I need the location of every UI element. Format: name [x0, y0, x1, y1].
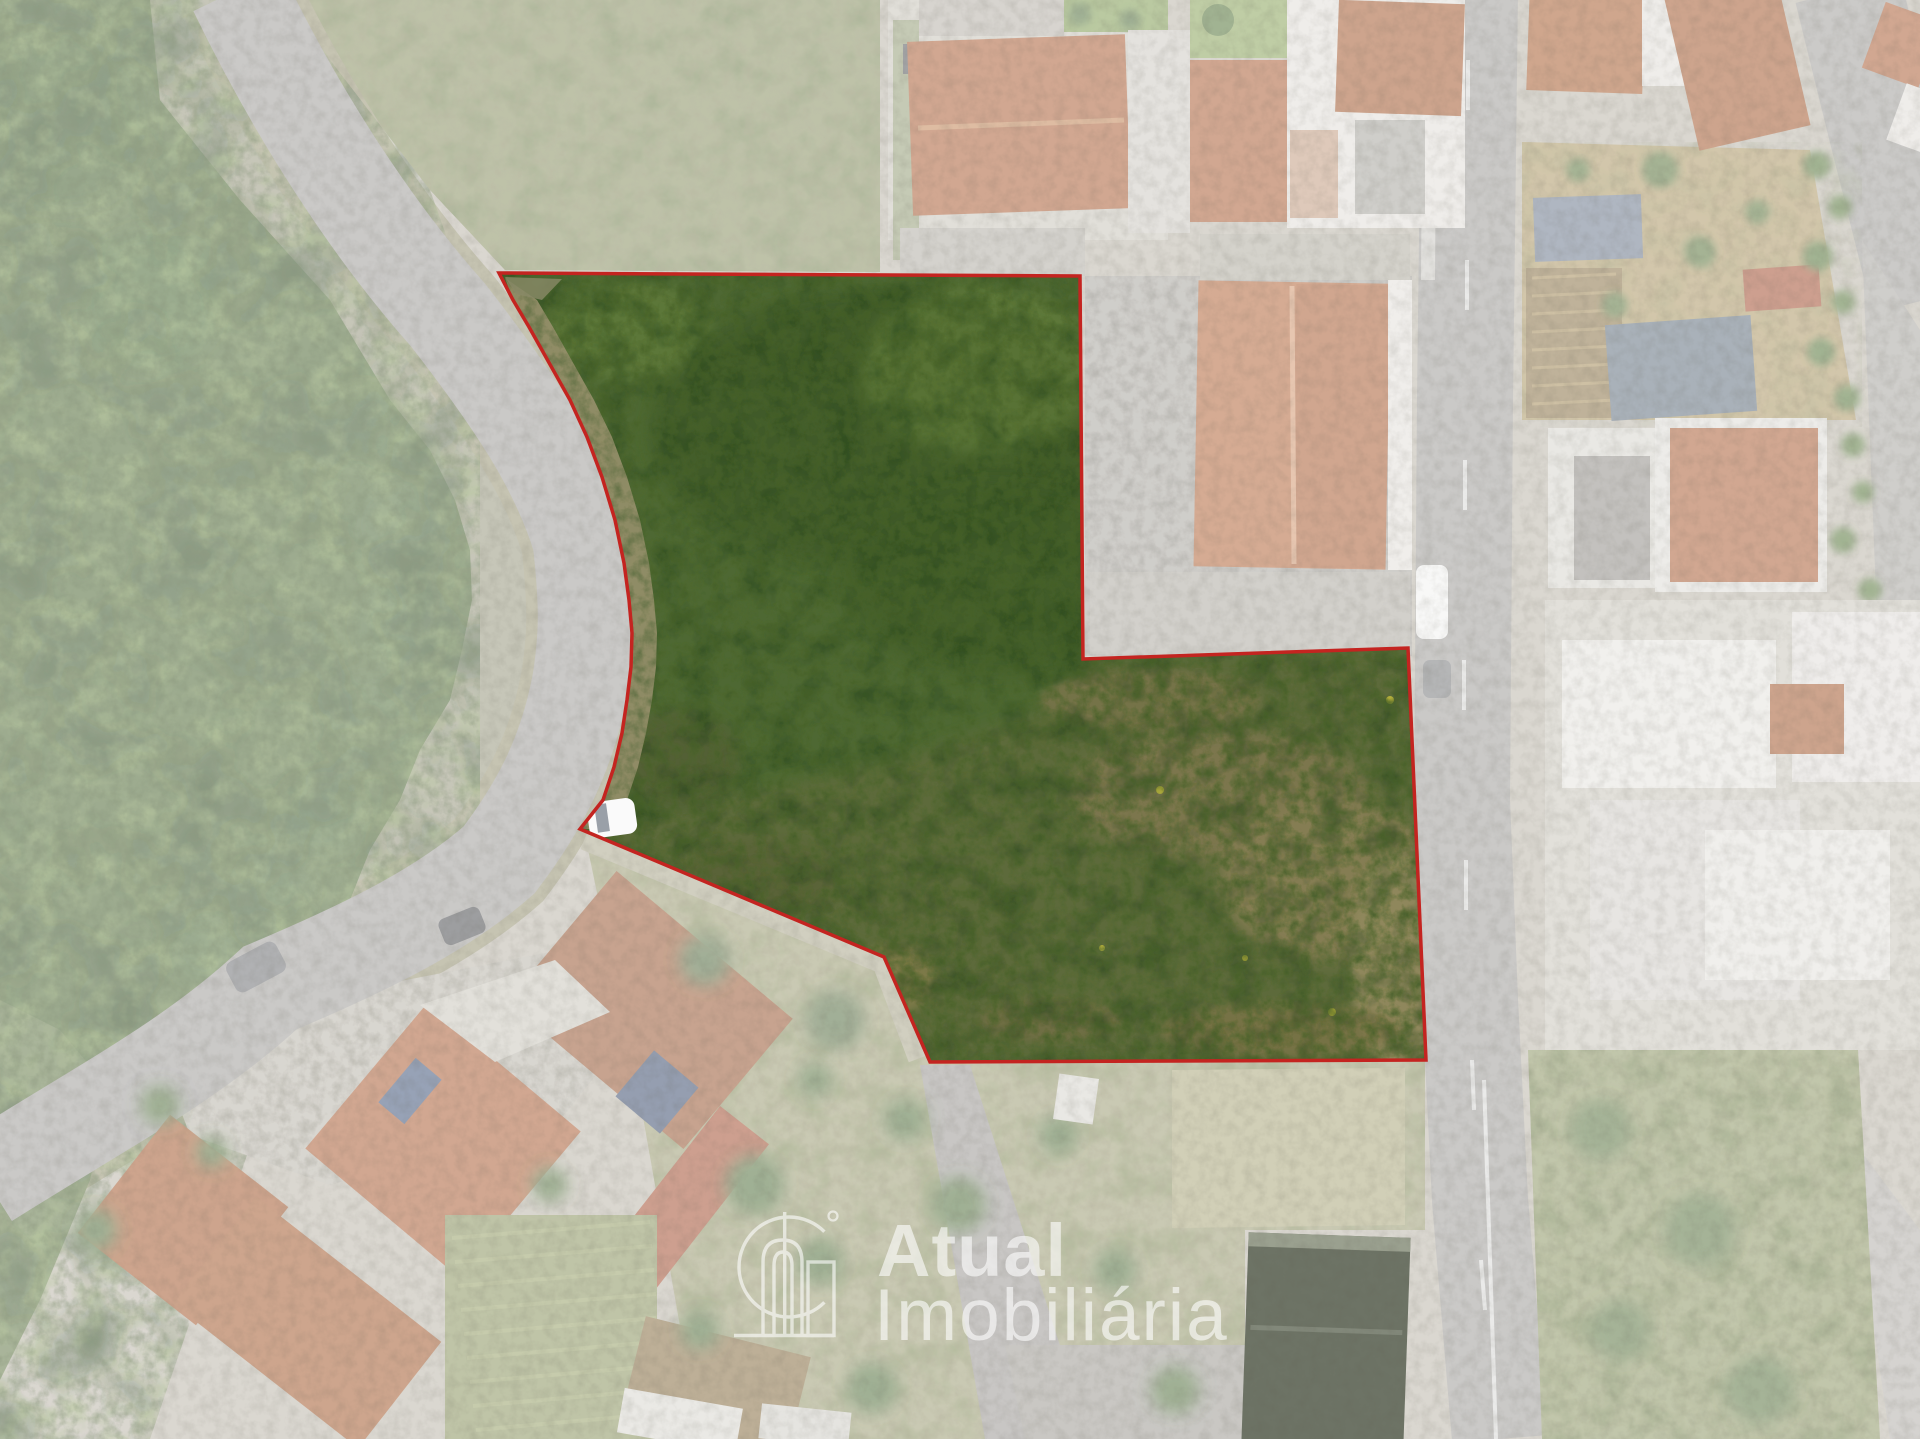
svg-text:Imobiliária: Imobiliária	[874, 1275, 1229, 1356]
